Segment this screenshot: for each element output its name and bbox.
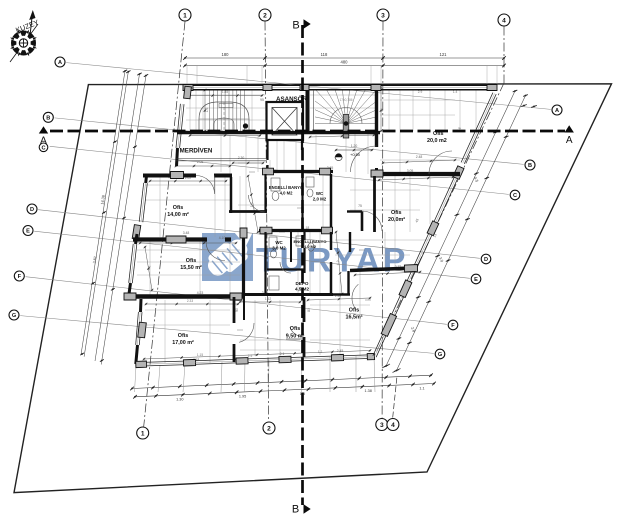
svg-text:180: 180 <box>222 52 230 57</box>
svg-text:80: 80 <box>307 308 311 312</box>
svg-text:15,50 m²: 15,50 m² <box>180 265 202 271</box>
svg-text:Ofis: Ofis <box>173 205 183 211</box>
svg-text:3: 3 <box>380 422 384 429</box>
svg-text:118: 118 <box>321 52 328 57</box>
svg-text:B: B <box>292 20 299 32</box>
svg-text:A: A <box>566 135 573 146</box>
svg-text:17x0,186: 17x0,186 <box>339 98 352 102</box>
svg-text:4: 4 <box>391 422 395 429</box>
svg-text:G: G <box>438 352 442 358</box>
svg-text:Ofis: Ofis <box>349 308 359 314</box>
svg-text:G: G <box>12 313 16 319</box>
svg-text:Ofis: Ofis <box>186 258 196 264</box>
svg-text:C: C <box>513 193 517 199</box>
svg-text:90: 90 <box>235 308 239 312</box>
svg-text:Ofis: Ofis <box>178 333 188 339</box>
svg-text:4.10: 4.10 <box>219 236 226 240</box>
svg-text:E: E <box>474 277 478 283</box>
svg-text:2.9: 2.9 <box>418 90 423 94</box>
svg-text:17,00 m²: 17,00 m² <box>172 340 194 346</box>
svg-text:ENGELLİ BANYO: ENGELLİ BANYO <box>269 185 304 190</box>
svg-text:75: 75 <box>358 204 362 208</box>
svg-text:1.4: 1.4 <box>453 90 458 94</box>
svg-text:2.5: 2.5 <box>248 354 253 358</box>
svg-text:480: 480 <box>341 60 349 65</box>
svg-text:1.30: 1.30 <box>176 397 183 401</box>
svg-text:16,5m²: 16,5m² <box>345 315 362 321</box>
svg-text:D: D <box>30 207 34 213</box>
svg-text:A: A <box>40 136 47 147</box>
svg-text:Ofis: Ofis <box>290 326 300 332</box>
svg-text:2: 2 <box>267 425 271 432</box>
svg-text:E: E <box>26 229 30 235</box>
svg-text:4.1: 4.1 <box>147 265 152 270</box>
svg-text:1.20: 1.20 <box>351 144 358 148</box>
svg-text:1: 1 <box>141 430 145 437</box>
svg-text:A: A <box>555 108 559 114</box>
svg-text:2.30: 2.30 <box>238 156 245 160</box>
svg-text:4,0 M2: 4,0 M2 <box>304 244 317 249</box>
svg-text:3: 3 <box>381 12 385 19</box>
svg-text:3,0 M2: 3,0 M2 <box>272 246 286 251</box>
svg-text:1: 1 <box>183 12 187 19</box>
svg-text:Ofis: Ofis <box>391 210 401 216</box>
svg-text:MERDİVEN: MERDİVEN <box>180 148 213 155</box>
svg-text:B: B <box>292 504 299 516</box>
svg-text:WC: WC <box>316 191 324 196</box>
svg-text:4: 4 <box>502 17 506 24</box>
svg-text:D: D <box>484 257 488 263</box>
svg-text:B: B <box>528 163 532 169</box>
svg-text:1.1: 1.1 <box>419 387 424 391</box>
svg-text:1.38: 1.38 <box>365 389 372 393</box>
svg-text:1.2: 1.2 <box>318 350 323 354</box>
svg-text:90: 90 <box>380 108 384 112</box>
svg-text:2.33: 2.33 <box>187 299 193 303</box>
svg-text:14,00 m²: 14,00 m² <box>167 212 189 218</box>
svg-text:B: B <box>46 115 50 121</box>
svg-text:3.48: 3.48 <box>183 231 190 235</box>
svg-text:+0.50: +0.50 <box>350 152 361 157</box>
svg-text:2.45: 2.45 <box>337 349 344 353</box>
svg-text:2: 2 <box>263 12 267 19</box>
svg-text:F: F <box>18 274 22 280</box>
svg-text:1.52: 1.52 <box>265 297 271 301</box>
svg-text:4,0 M2: 4,0 M2 <box>280 191 293 196</box>
svg-text:121: 121 <box>440 52 448 57</box>
svg-text:2,0 M2: 2,0 M2 <box>313 197 327 202</box>
svg-text:A: A <box>58 60 62 66</box>
svg-text:F: F <box>451 323 455 329</box>
svg-text:2.48: 2.48 <box>416 155 423 159</box>
svg-text:1.95: 1.95 <box>239 395 246 399</box>
svg-text:95: 95 <box>260 98 264 102</box>
svg-text:1.15: 1.15 <box>197 353 203 357</box>
svg-text:1.3: 1.3 <box>205 108 209 113</box>
svg-text:WC: WC <box>275 240 283 245</box>
svg-text:20,0m²: 20,0m² <box>388 217 405 223</box>
svg-text:4.2: 4.2 <box>336 260 340 265</box>
svg-text:20,0 m2: 20,0 m2 <box>427 138 447 144</box>
